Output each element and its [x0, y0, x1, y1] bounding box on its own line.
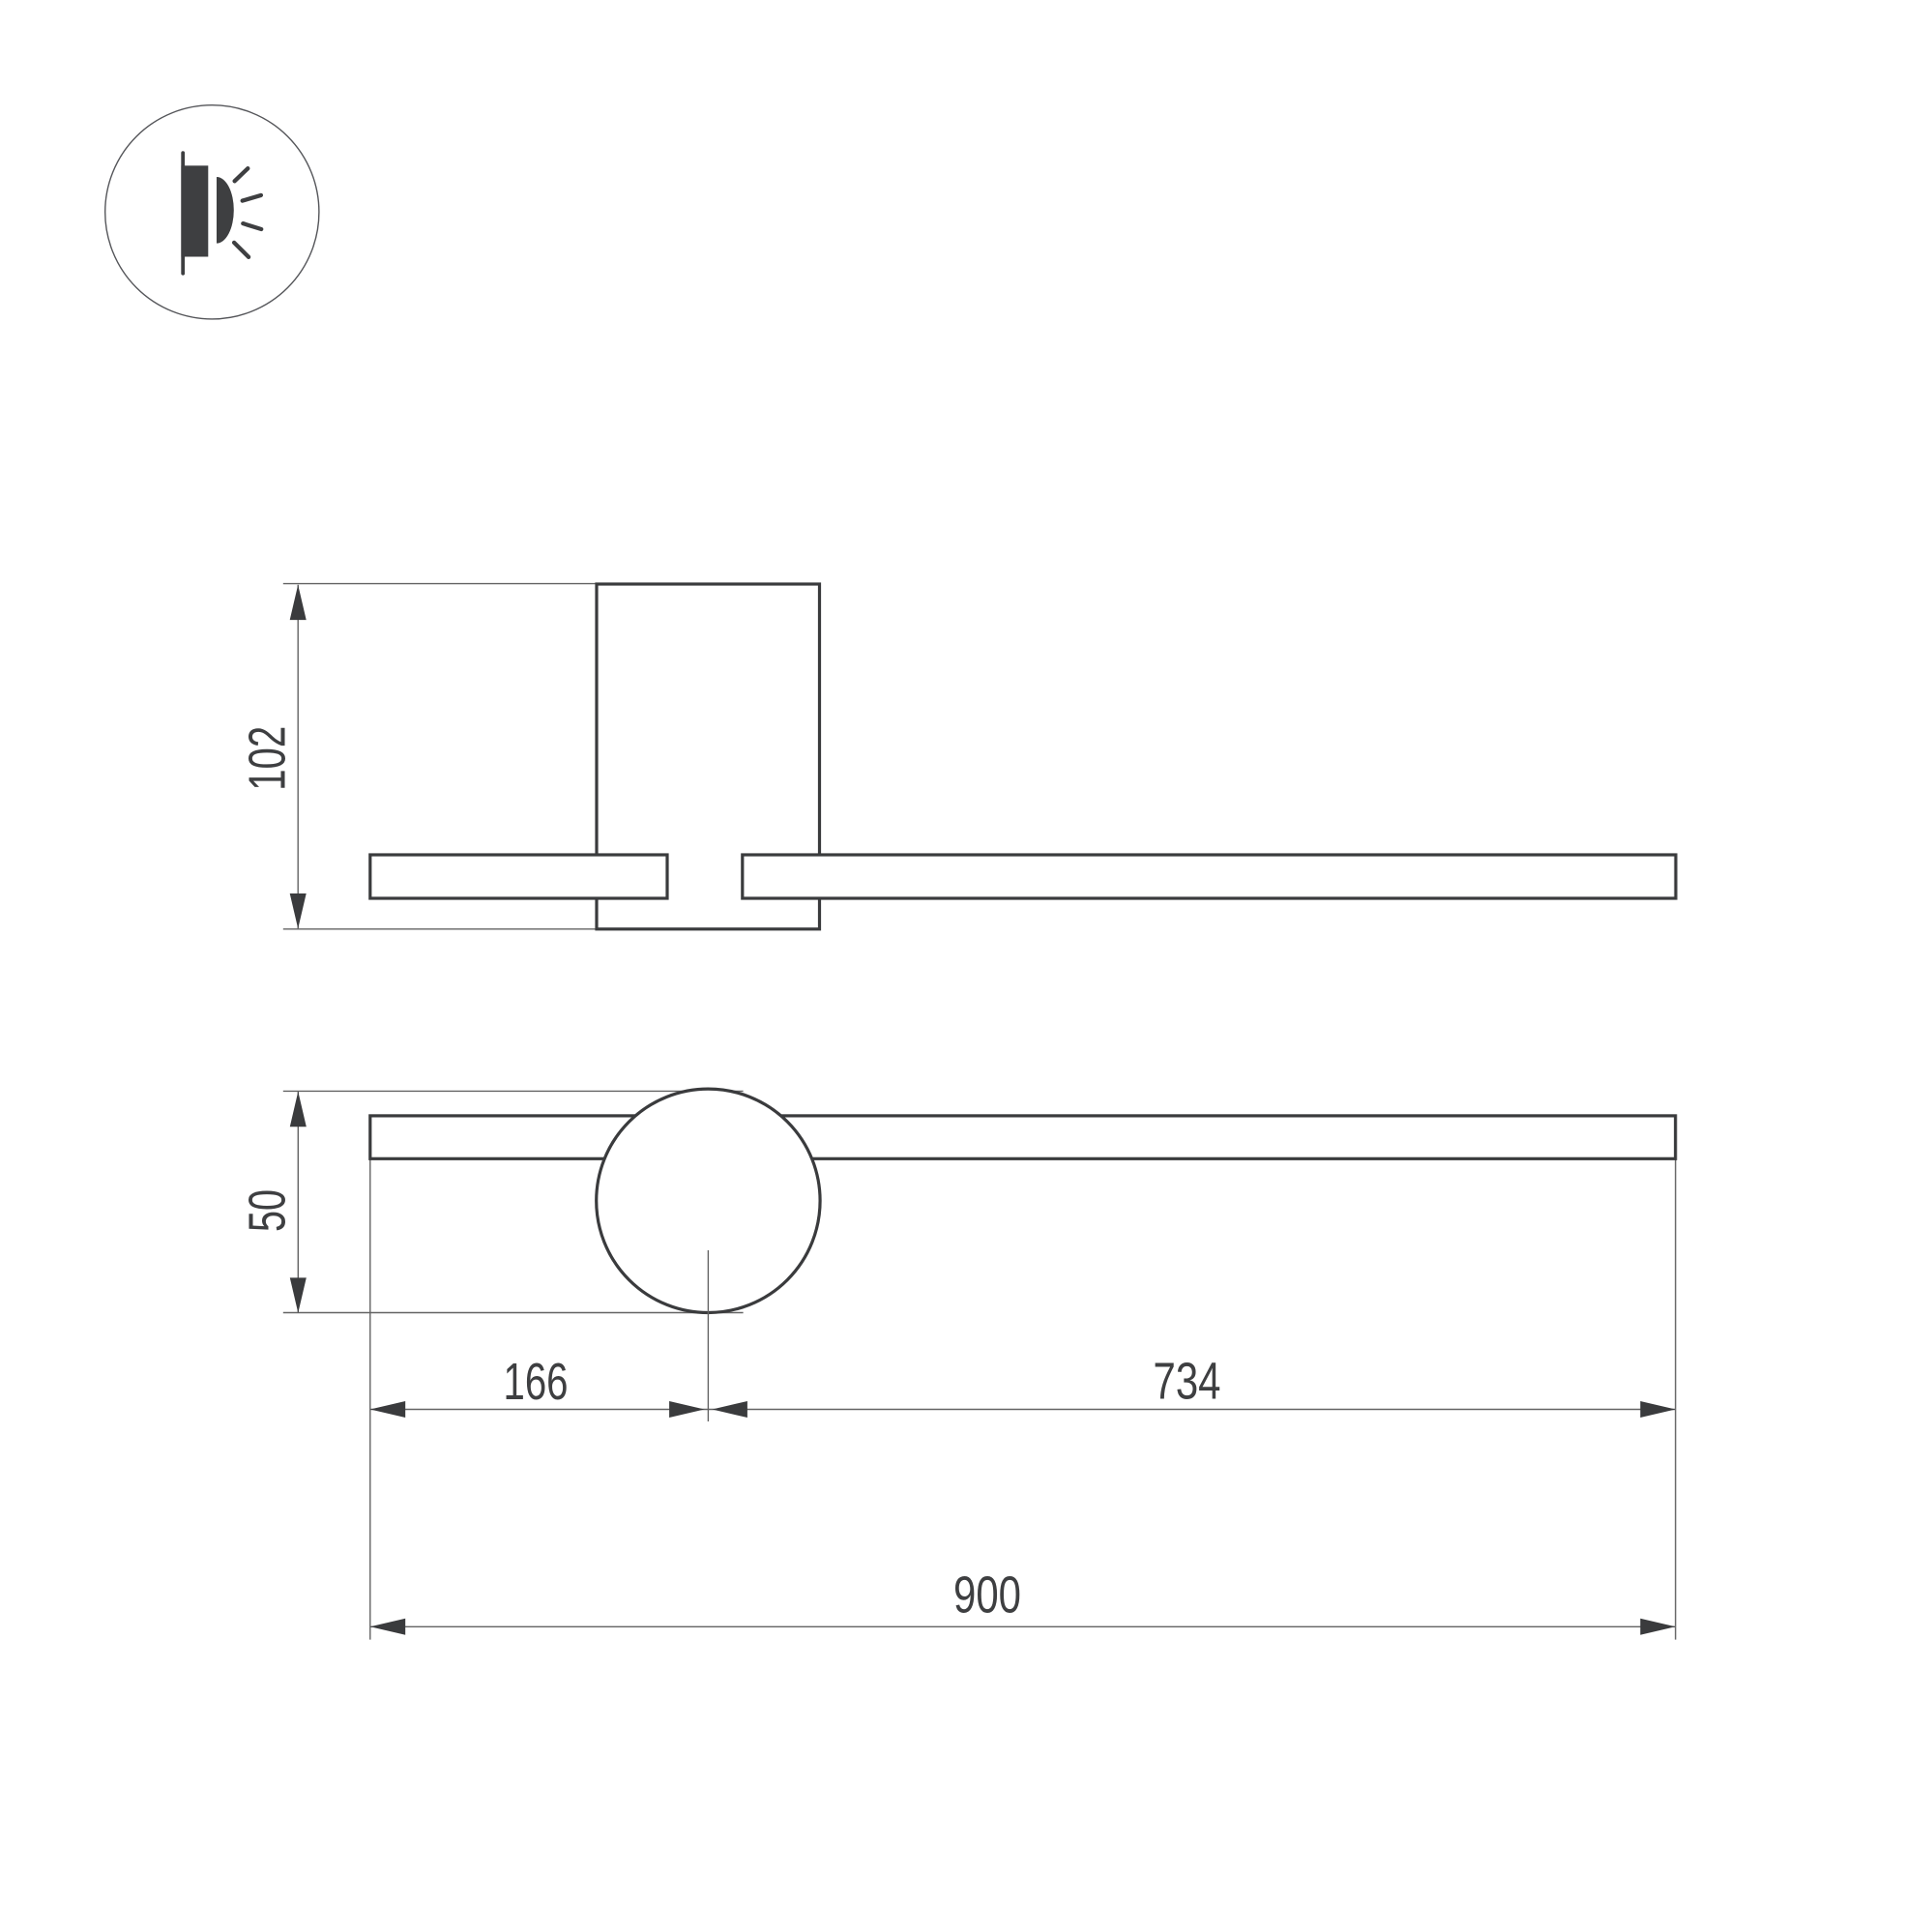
svg-text:50: 50	[239, 1189, 297, 1232]
svg-text:166: 166	[504, 1353, 569, 1411]
svg-text:734: 734	[1154, 1352, 1221, 1410]
svg-text:102: 102	[239, 726, 297, 791]
svg-text:900: 900	[953, 1566, 1021, 1624]
